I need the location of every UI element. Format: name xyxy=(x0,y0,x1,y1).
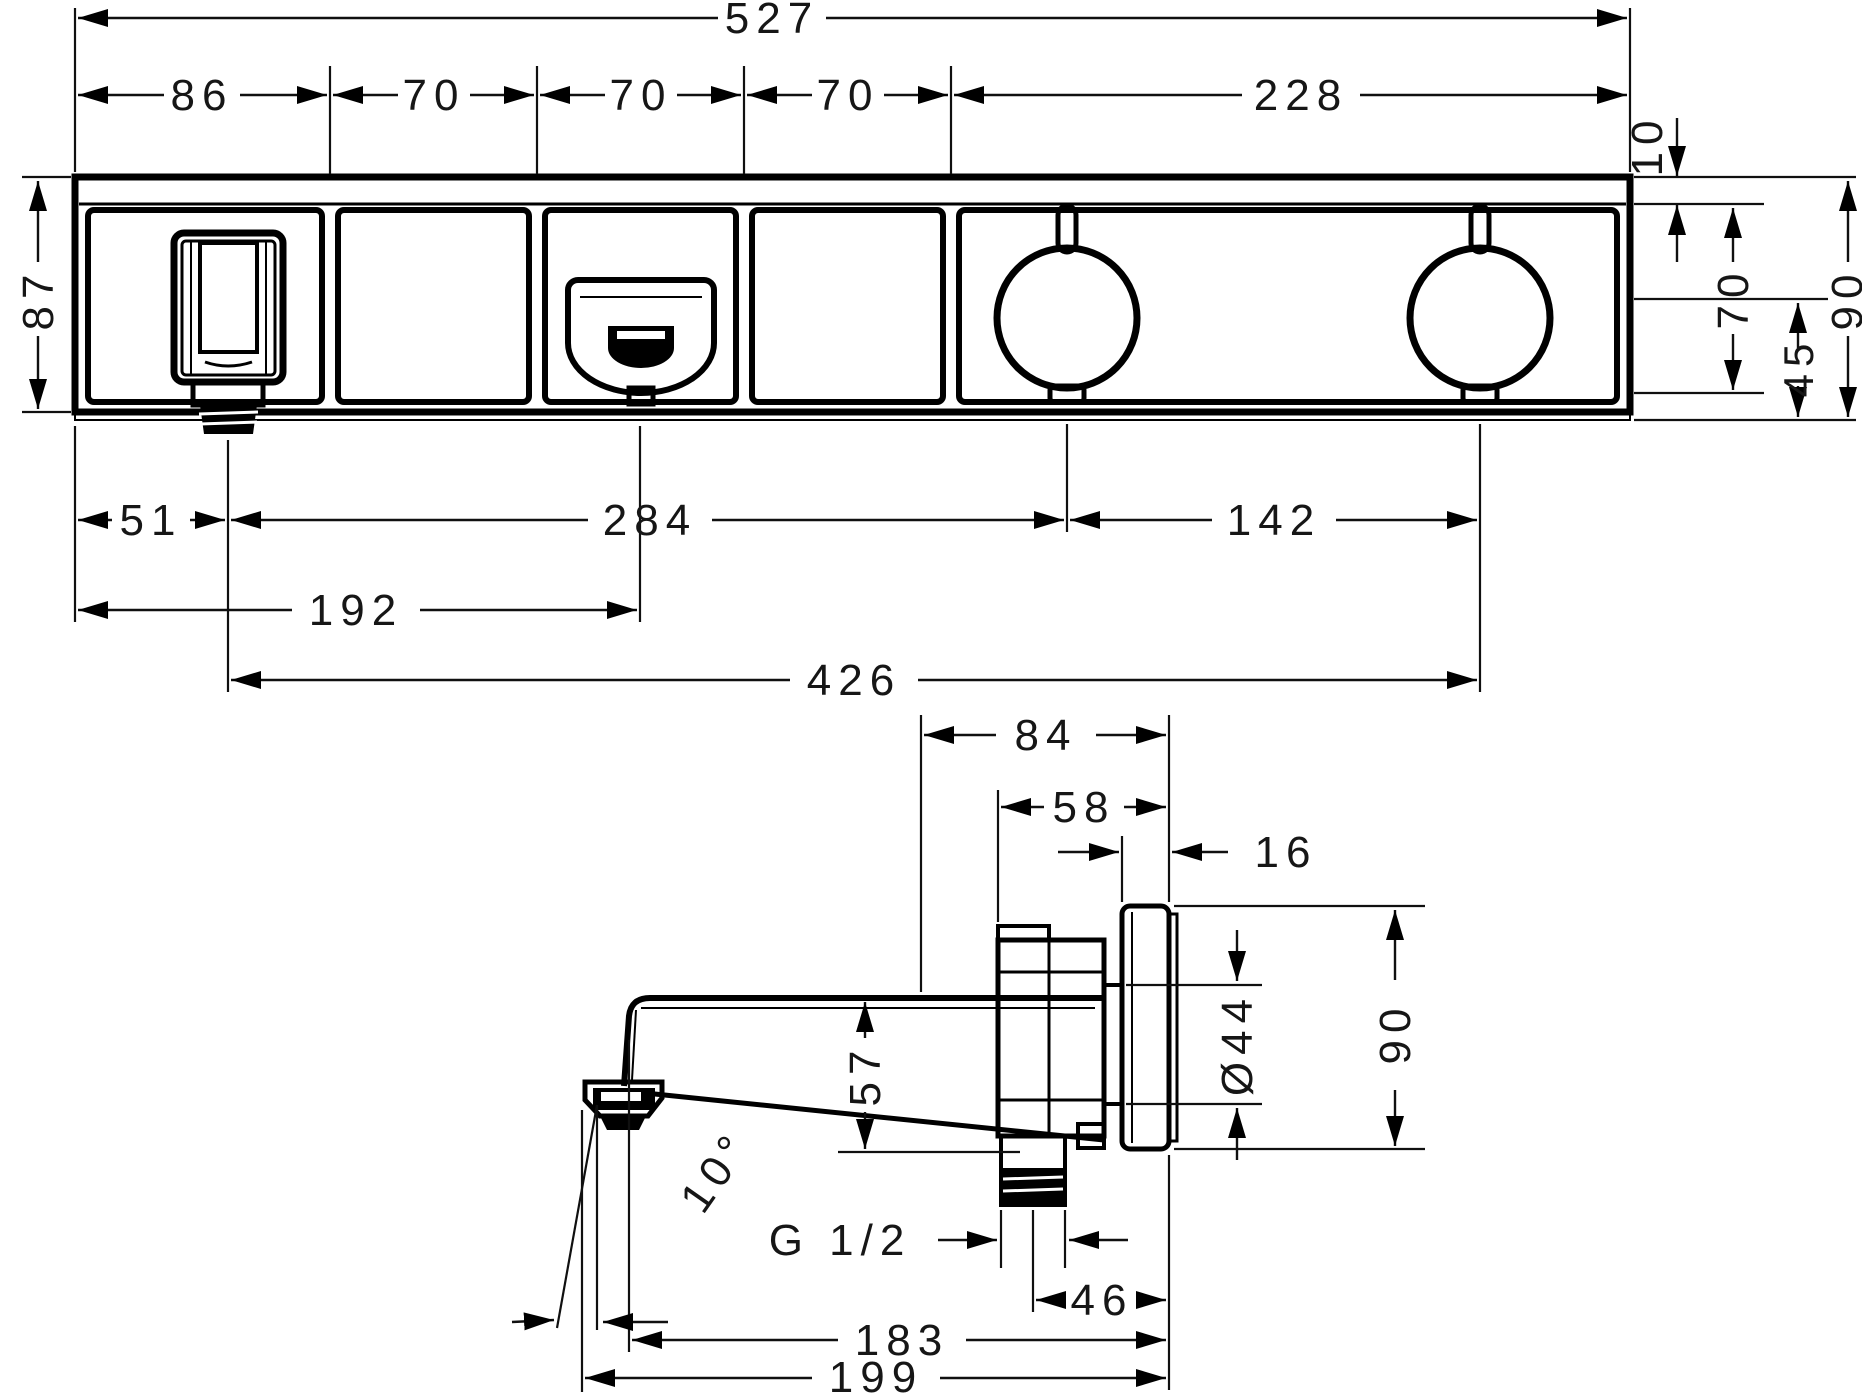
dim-90-right-label: 90 xyxy=(1823,268,1862,331)
dim-angle-10: 10° xyxy=(512,1105,761,1330)
panel-cell-1 xyxy=(88,210,322,402)
drawing-canvas: 527 86 70 70 70 228 xyxy=(0,0,1862,1393)
dim-51-label: 51 xyxy=(120,496,183,545)
thread-groove-1 xyxy=(199,412,258,414)
holder-inner-frame xyxy=(182,241,275,375)
valve-block xyxy=(998,926,1104,1148)
knob-right-dial xyxy=(1410,248,1550,388)
spout-front-symbol xyxy=(568,280,714,404)
knob-right-tab xyxy=(1463,386,1497,402)
dim-thread: G 1/2 xyxy=(769,1216,1128,1265)
dim-thread-label: G 1/2 xyxy=(769,1216,912,1265)
dim-90-side-label: 90 xyxy=(1371,1002,1420,1065)
panel-cell-2 xyxy=(338,210,529,402)
dim-45: 45 xyxy=(1775,303,1822,417)
dim-44: Ø44 xyxy=(1213,930,1262,1160)
dim-142-label: 142 xyxy=(1227,496,1321,545)
knob-right xyxy=(1410,206,1550,402)
dim-527: 527 xyxy=(78,0,1627,43)
dim-57-label: 57 xyxy=(841,1044,890,1107)
dim-199: 199 xyxy=(585,1353,1166,1393)
thread-groove-2 xyxy=(200,422,257,424)
holder-slot xyxy=(200,243,257,352)
plate-back-sliver xyxy=(1169,914,1177,1141)
front-extension-lines-bottom xyxy=(75,424,1480,692)
knob-left-dial xyxy=(997,248,1137,388)
spout-mouth-slot xyxy=(617,331,665,339)
dim-70a-label: 70 xyxy=(403,71,466,120)
dim-84-label: 84 xyxy=(1015,711,1078,760)
dim-86-label: 86 xyxy=(171,71,234,120)
dim-58-label: 58 xyxy=(1053,783,1116,832)
dim-70-right: 70 xyxy=(1709,208,1758,390)
dim-199-label: 199 xyxy=(829,1353,923,1393)
dim-46: 46 xyxy=(1036,1276,1166,1325)
dim-228-label: 228 xyxy=(1254,71,1348,120)
escutcheon-plate xyxy=(1122,906,1177,1149)
dim-70c: 70 xyxy=(747,71,948,120)
front-view: 527 86 70 70 70 228 xyxy=(14,0,1862,705)
dim-142: 142 xyxy=(1070,496,1477,545)
panel-cell-3 xyxy=(545,210,736,402)
block-outline xyxy=(998,940,1104,1136)
dim-87: 87 xyxy=(14,177,71,412)
panel-cell-4 xyxy=(752,210,943,402)
dim-527-label: 527 xyxy=(725,0,819,43)
dim-192: 192 xyxy=(78,586,637,635)
dim-86: 86 xyxy=(78,71,327,120)
side-view: 84 58 16 57 Ø44 90 xyxy=(512,711,1425,1393)
side-extension-lines xyxy=(582,715,1425,1392)
dim-70-right-label: 70 xyxy=(1709,267,1758,330)
dim-87-label: 87 xyxy=(14,268,63,331)
dim-58: 58 xyxy=(1001,783,1166,832)
dim-284-label: 284 xyxy=(603,496,697,545)
angle-sloped-ref xyxy=(557,1105,597,1328)
dim-70b: 70 xyxy=(540,71,741,120)
panel-body xyxy=(75,177,1630,420)
dim-10-label: 10 xyxy=(1623,114,1672,177)
collar-ring xyxy=(1104,985,1122,1104)
dim-46-label: 46 xyxy=(1071,1276,1134,1325)
dim-284: 284 xyxy=(231,496,1064,545)
knob-left-tab xyxy=(1050,386,1084,402)
nipple-groove-1 xyxy=(1003,1177,1063,1179)
nipple-groove-2 xyxy=(1003,1189,1063,1191)
dim-84: 84 xyxy=(924,711,1166,760)
dim-192-label: 192 xyxy=(309,586,403,635)
dim-16-label: 16 xyxy=(1255,828,1318,877)
nipple-thread xyxy=(1003,1168,1063,1205)
technical-drawing: 527 86 70 70 70 228 xyxy=(0,0,1862,1393)
knob-left xyxy=(997,206,1137,402)
dim-90-side: 90 xyxy=(1371,910,1420,1146)
thread-nipple xyxy=(1001,1136,1065,1205)
dim-57: 57 xyxy=(841,1002,890,1149)
dim-10: 10 xyxy=(1623,114,1856,262)
dim-70c-label: 70 xyxy=(817,71,880,120)
dim-90-right: 90 xyxy=(1823,181,1862,417)
dim-426-label: 426 xyxy=(807,656,901,705)
spout-inner-front-line xyxy=(632,1010,636,1080)
aerator-slot xyxy=(601,1092,641,1101)
dim-426: 426 xyxy=(231,656,1477,705)
dim-angle-10-label: 10° xyxy=(671,1122,761,1222)
holder-outlet-thread xyxy=(200,405,257,434)
dim-70b-label: 70 xyxy=(610,71,673,120)
holder-cup-curve xyxy=(205,362,252,366)
aerator-lip xyxy=(600,1116,646,1130)
dim-44-label: Ø44 xyxy=(1213,992,1262,1096)
dim-16: 16 xyxy=(1058,828,1317,877)
dim-45-label: 45 xyxy=(1775,337,1822,398)
dim-51: 51 xyxy=(78,496,225,545)
plate-outline xyxy=(1122,906,1169,1149)
dim-70a: 70 xyxy=(333,71,534,120)
dim-228: 228 xyxy=(954,71,1627,120)
